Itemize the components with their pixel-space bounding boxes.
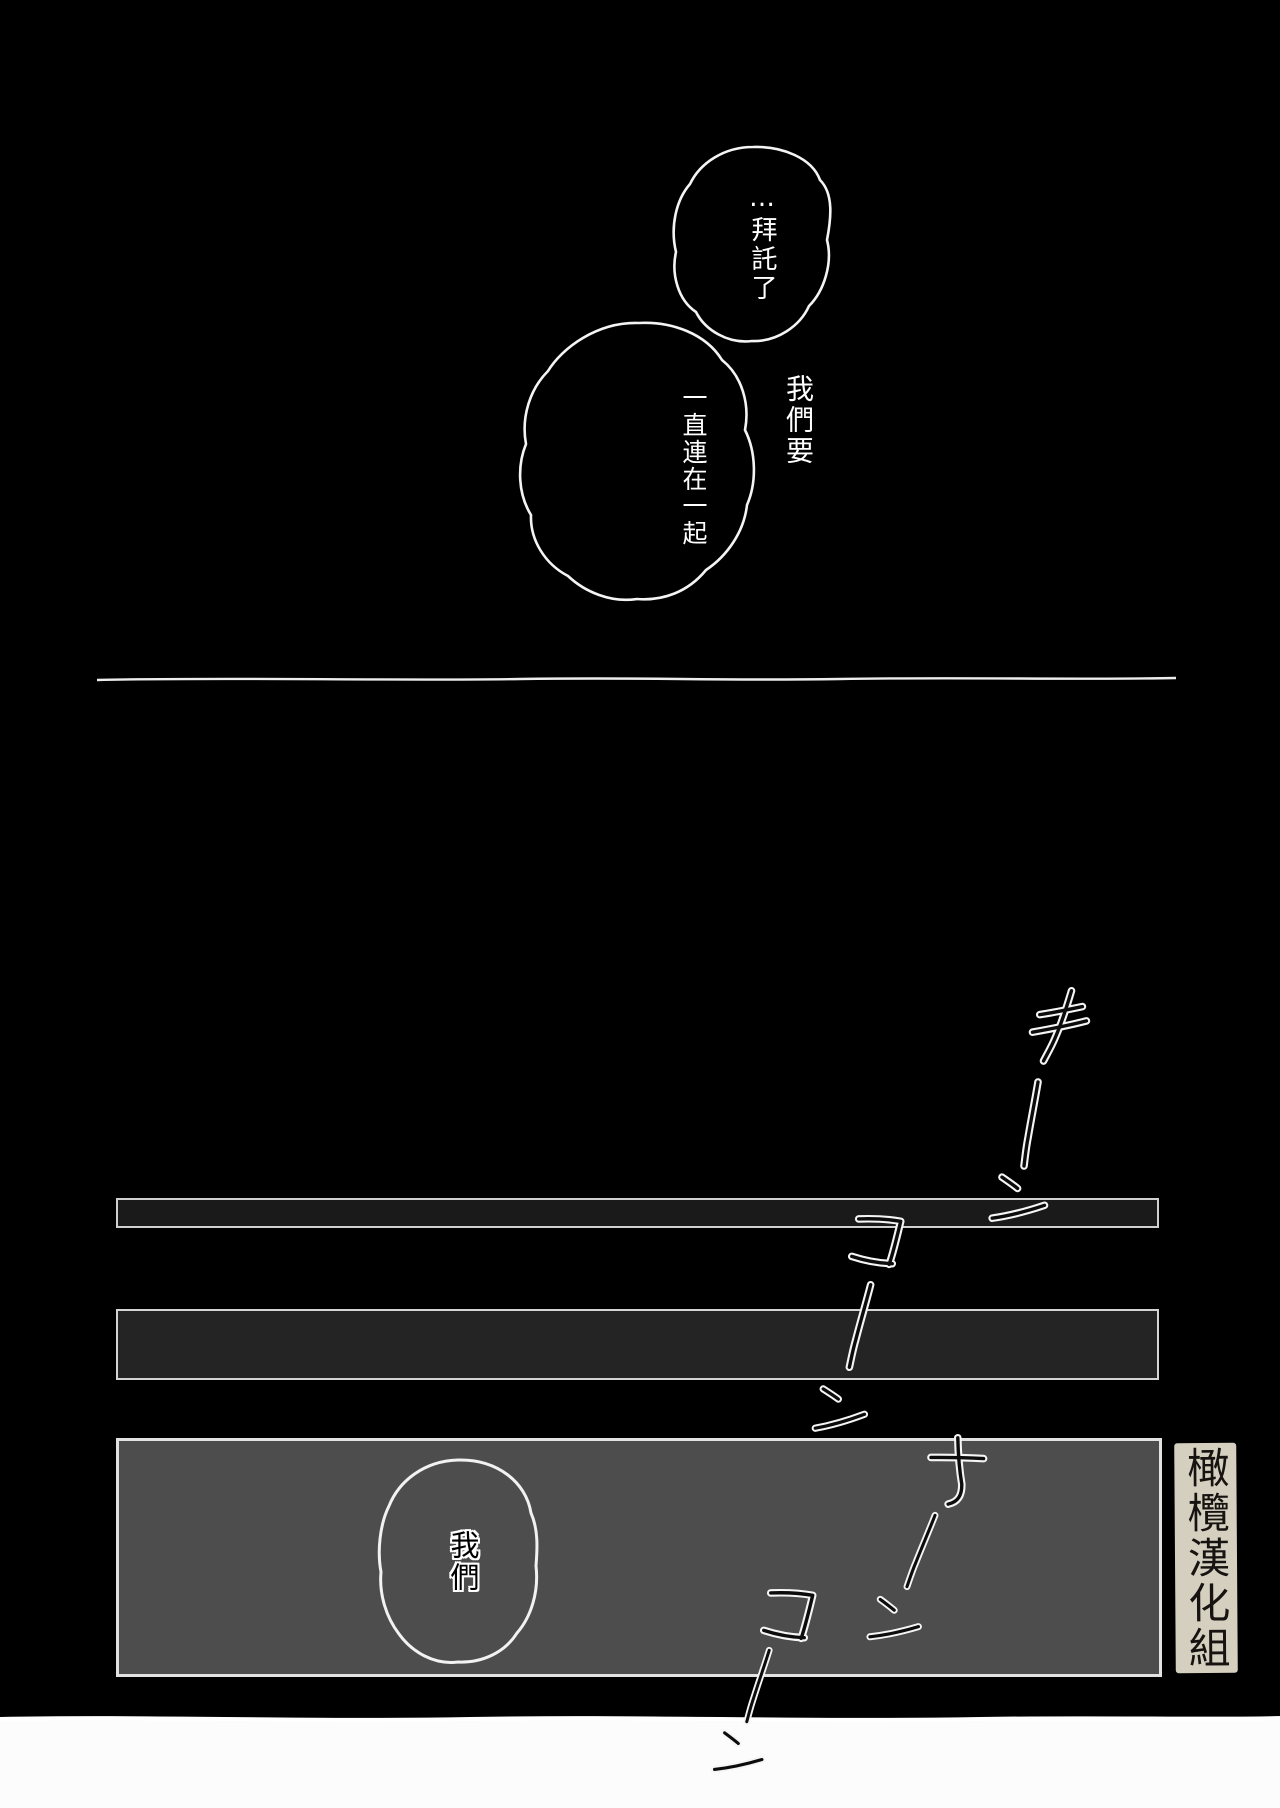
sfx-char-n-2 [815, 1389, 866, 1434]
manga-page: 橄欖漢化組 [0, 0, 1280, 1808]
panel-bar-thin [116, 1198, 1159, 1228]
page-bottom-margin [0, 1720, 1280, 1808]
sfx-char-ki [1031, 988, 1089, 1064]
speech-bubble-main-line-2: 一直連在一起 [676, 385, 711, 604]
sfx-char-bar-1 [1024, 1082, 1038, 1166]
panel-bar-medium [116, 1309, 1159, 1380]
translation-credit-label: 橄欖漢化組 [1174, 1443, 1238, 1673]
panel-large-gray [116, 1438, 1162, 1677]
credit-text: 橄欖漢化組 [1175, 1445, 1238, 1670]
speech-bubble-main-text: 我們要 一直連在一起 [606, 374, 886, 604]
speech-bubble-top-text: …拜託了 [744, 183, 781, 303]
speech-bubble-panel-text: 我們 [442, 1530, 484, 1594]
scene-divider-line [97, 678, 1176, 680]
speech-bubble-main-line-1: 我們要 [781, 374, 816, 604]
